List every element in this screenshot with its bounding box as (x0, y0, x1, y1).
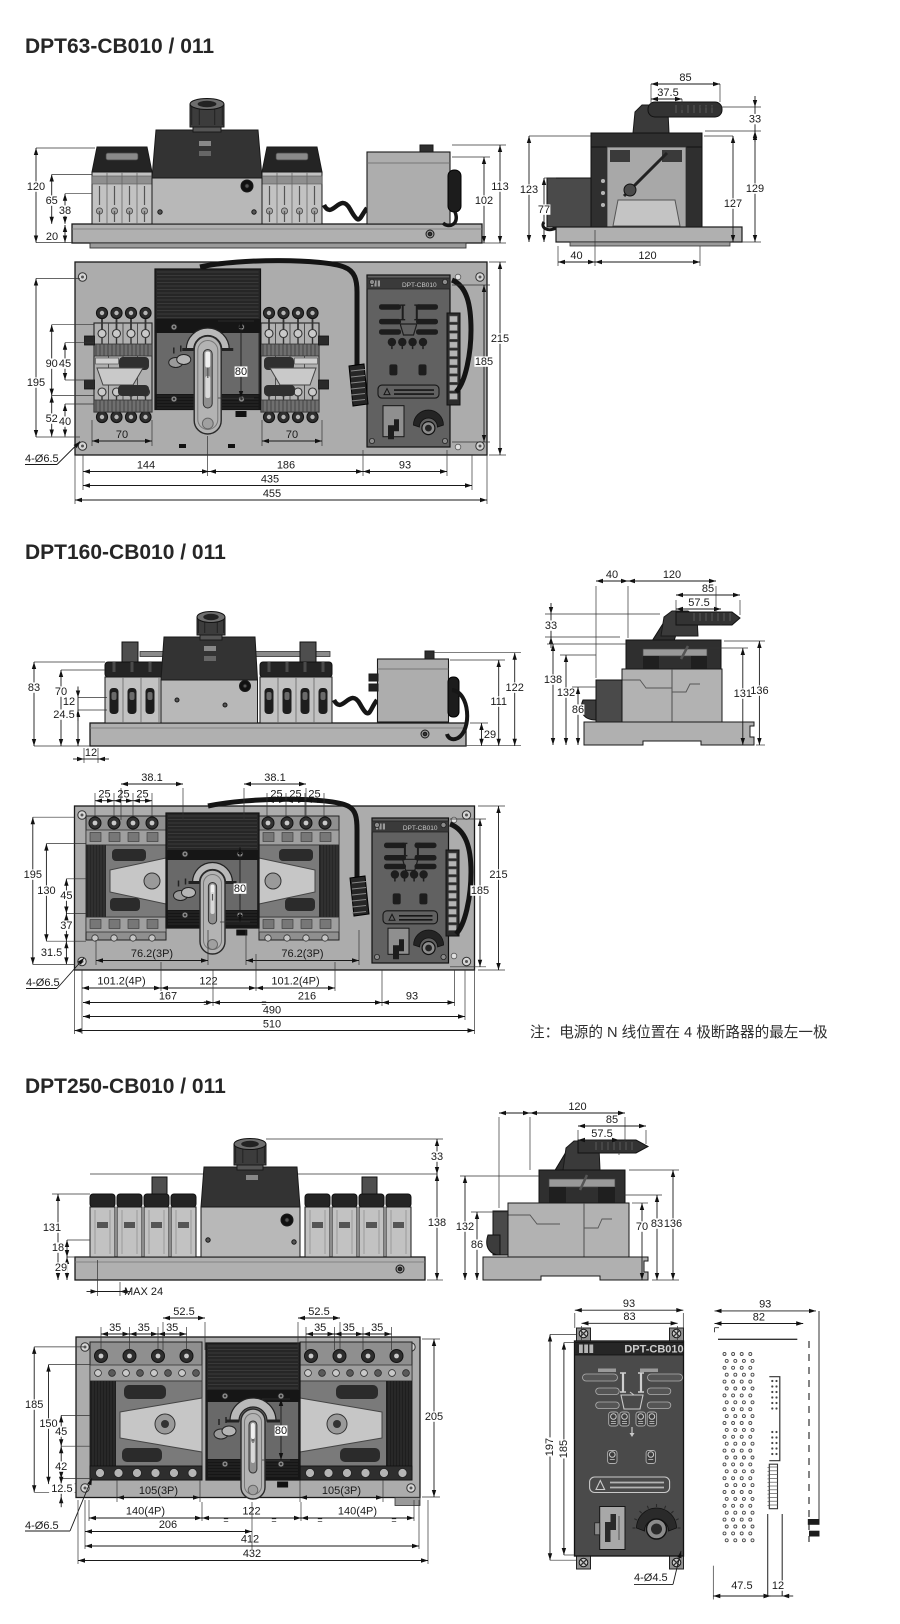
svg-text:12.5: 12.5 (51, 1483, 72, 1495)
svg-text:82: 82 (753, 1311, 765, 1323)
svg-text:25: 25 (270, 789, 282, 801)
svg-text:205: 205 (425, 1411, 443, 1423)
svg-text:215: 215 (489, 869, 507, 881)
svg-text:132: 132 (456, 1221, 474, 1233)
svg-text:197: 197 (544, 1438, 556, 1456)
svg-text:37: 37 (60, 920, 72, 932)
svg-text:4-Ø6.5: 4-Ø6.5 (25, 453, 59, 465)
svg-text:122: 122 (199, 976, 217, 988)
svg-text:40: 40 (59, 416, 71, 428)
svg-text:490: 490 (263, 1005, 281, 1017)
svg-text:122: 122 (242, 1506, 260, 1518)
svg-text:35: 35 (166, 1322, 178, 1334)
svg-text:12: 12 (772, 1580, 784, 1592)
svg-text:25: 25 (289, 789, 301, 801)
svg-text:105(3P): 105(3P) (139, 1485, 178, 1497)
svg-text:DPT-CB010: DPT-CB010 (402, 282, 437, 289)
svg-text:DPT63-CB010 / 011: DPT63-CB010 / 011 (25, 35, 214, 58)
svg-text:80: 80 (275, 1425, 287, 1437)
svg-text:86: 86 (471, 1239, 483, 1251)
svg-text:38: 38 (59, 205, 71, 217)
svg-text:102: 102 (475, 195, 493, 207)
svg-text:35: 35 (314, 1322, 326, 1334)
svg-text:24.5: 24.5 (53, 709, 74, 721)
svg-text:195: 195 (24, 869, 42, 881)
svg-text:29: 29 (55, 1262, 67, 1274)
svg-text:33: 33 (431, 1151, 443, 1163)
svg-text:185: 185 (475, 356, 493, 368)
svg-text:80: 80 (235, 366, 247, 378)
svg-text:138: 138 (428, 1217, 446, 1229)
svg-text:140(4P): 140(4P) (126, 1506, 165, 1518)
svg-text:144: 144 (137, 460, 155, 472)
svg-text:435: 435 (261, 474, 279, 486)
svg-text:510: 510 (263, 1019, 281, 1031)
svg-text:129: 129 (746, 183, 764, 195)
svg-text:412: 412 (241, 1534, 259, 1546)
svg-text:167: 167 (159, 991, 177, 1003)
svg-text:25: 25 (308, 789, 320, 801)
svg-text:455: 455 (263, 488, 281, 500)
svg-text:215: 215 (491, 333, 509, 345)
svg-text:185: 185 (558, 1440, 570, 1458)
svg-text:52.5: 52.5 (173, 1306, 194, 1318)
svg-text:=: = (203, 998, 208, 1008)
svg-text:18: 18 (52, 1242, 64, 1254)
svg-text:12: 12 (85, 747, 97, 759)
svg-text:4-Ø4.5: 4-Ø4.5 (634, 1572, 668, 1584)
svg-text:DPT250-CB010 / 011: DPT250-CB010 / 011 (25, 1075, 226, 1098)
svg-text:131: 131 (734, 688, 752, 700)
svg-text:131: 131 (43, 1222, 61, 1234)
svg-text:111: 111 (490, 696, 507, 708)
svg-text:120: 120 (663, 569, 681, 581)
svg-text:52: 52 (46, 413, 58, 425)
svg-text:136: 136 (750, 685, 768, 697)
svg-text:83: 83 (623, 1311, 635, 1323)
svg-text:45: 45 (59, 358, 71, 370)
svg-text:52.5: 52.5 (308, 1306, 329, 1318)
svg-text:70: 70 (286, 429, 298, 441)
svg-text:127: 127 (724, 198, 742, 210)
svg-text:93: 93 (623, 1298, 635, 1310)
svg-text:20: 20 (46, 231, 58, 243)
svg-text:DPT160-CB010 / 011: DPT160-CB010 / 011 (25, 541, 226, 564)
svg-text:70: 70 (636, 1221, 648, 1233)
svg-text:120: 120 (638, 250, 656, 262)
svg-text:=: = (223, 1515, 228, 1525)
svg-text:85: 85 (679, 72, 691, 84)
svg-text:37.5: 37.5 (657, 87, 678, 99)
svg-text:120: 120 (568, 1101, 586, 1113)
svg-text:206: 206 (159, 1519, 177, 1531)
svg-text:38.1: 38.1 (264, 772, 285, 784)
svg-text:29: 29 (484, 729, 496, 741)
svg-text:25: 25 (136, 789, 148, 801)
svg-text:38.1: 38.1 (141, 772, 162, 784)
svg-text:85: 85 (606, 1114, 618, 1126)
svg-text:45: 45 (60, 890, 72, 902)
svg-text:186: 186 (277, 460, 295, 472)
svg-text:90: 90 (46, 358, 58, 370)
svg-text:432: 432 (243, 1548, 261, 1560)
svg-text:101.2(4P): 101.2(4P) (97, 976, 145, 988)
svg-text:40: 40 (606, 569, 618, 581)
svg-text:35: 35 (138, 1322, 150, 1334)
svg-text:93: 93 (406, 991, 418, 1003)
svg-text:216: 216 (298, 991, 316, 1003)
svg-text:MAX 24: MAX 24 (124, 1286, 163, 1298)
svg-text:42: 42 (55, 1461, 67, 1473)
svg-text:105(3P): 105(3P) (322, 1485, 361, 1497)
svg-text:136: 136 (664, 1218, 682, 1230)
svg-text:4-Ø6.5: 4-Ø6.5 (26, 977, 60, 989)
svg-text:33: 33 (749, 114, 761, 126)
svg-text:132: 132 (557, 687, 575, 699)
svg-text:76.2(3P): 76.2(3P) (281, 948, 323, 960)
svg-text:195: 195 (27, 377, 45, 389)
svg-text:35: 35 (371, 1322, 383, 1334)
svg-text:=: = (317, 1515, 322, 1525)
svg-text:35: 35 (109, 1322, 121, 1334)
svg-text:65: 65 (46, 195, 58, 207)
svg-text:DPT-CB010: DPT-CB010 (403, 825, 438, 832)
svg-text:185: 185 (471, 885, 489, 897)
svg-text:57.5: 57.5 (688, 597, 709, 609)
svg-text:86: 86 (572, 704, 584, 716)
svg-text:120: 120 (27, 181, 45, 193)
svg-text:80: 80 (234, 883, 246, 895)
svg-text:=: = (271, 1515, 276, 1525)
svg-text:185: 185 (25, 1399, 43, 1411)
svg-text:12: 12 (63, 696, 75, 708)
svg-text:138: 138 (544, 674, 562, 686)
svg-text:40: 40 (570, 250, 582, 262)
svg-text:123: 123 (520, 184, 538, 196)
svg-text:4-Ø6.5: 4-Ø6.5 (25, 1520, 59, 1532)
svg-text:注：电源的 N 线位置在 4 极断路器的最左一极: 注：电源的 N 线位置在 4 极断路器的最左一极 (530, 1024, 828, 1041)
svg-text:93: 93 (759, 1299, 771, 1311)
svg-text:33: 33 (545, 620, 557, 632)
svg-text:101.2(4P): 101.2(4P) (271, 976, 319, 988)
svg-text:122: 122 (506, 682, 524, 694)
svg-text:=: = (391, 1515, 396, 1525)
svg-text:140(4P): 140(4P) (338, 1506, 377, 1518)
svg-text:47.5: 47.5 (731, 1580, 752, 1592)
svg-text:31.5: 31.5 (41, 947, 62, 959)
svg-text:93: 93 (399, 460, 411, 472)
svg-text:85: 85 (702, 583, 714, 595)
svg-text:25: 25 (98, 789, 110, 801)
svg-text:83: 83 (28, 682, 40, 694)
svg-text:113: 113 (491, 181, 509, 193)
svg-text:83: 83 (651, 1218, 663, 1230)
svg-text:25: 25 (117, 789, 129, 801)
svg-text:77: 77 (538, 204, 550, 216)
svg-text:35: 35 (343, 1322, 355, 1334)
svg-text:57.5: 57.5 (591, 1128, 612, 1140)
svg-text:70: 70 (116, 429, 128, 441)
svg-text:130: 130 (37, 885, 55, 897)
svg-text:45: 45 (55, 1426, 67, 1438)
svg-text:DPT-CB010: DPT-CB010 (624, 1344, 683, 1356)
svg-text:76.2(3P): 76.2(3P) (131, 948, 173, 960)
